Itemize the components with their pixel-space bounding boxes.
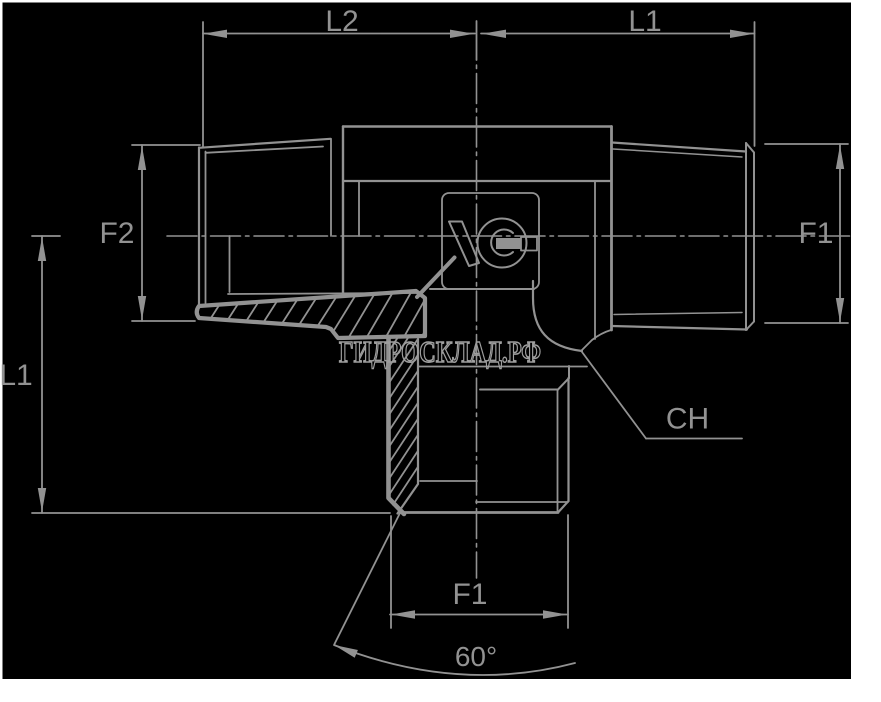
svg-text:F2: F2 bbox=[99, 217, 134, 250]
svg-text:ГИДРОСКЛАД.РФ: ГИДРОСКЛАД.РФ bbox=[339, 334, 541, 369]
svg-text:L1: L1 bbox=[628, 5, 661, 38]
svg-text:CH: CH bbox=[666, 403, 709, 436]
svg-text:L2: L2 bbox=[325, 5, 358, 38]
svg-text:L1: L1 bbox=[0, 359, 33, 392]
svg-text:F1: F1 bbox=[798, 217, 833, 250]
svg-text:60°: 60° bbox=[455, 641, 497, 672]
svg-text:F1: F1 bbox=[452, 578, 487, 611]
